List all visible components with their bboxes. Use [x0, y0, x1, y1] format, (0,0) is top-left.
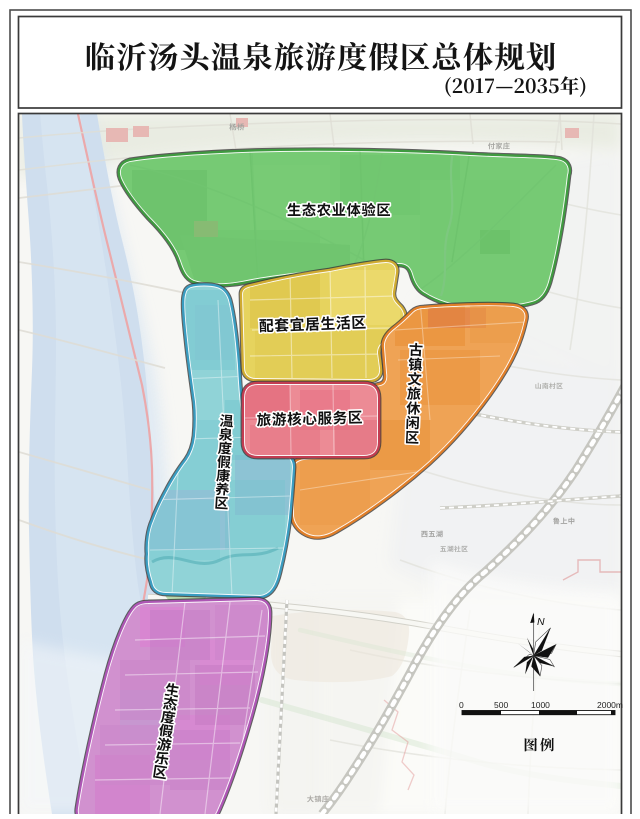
svg-text:2000m: 2000m [597, 700, 623, 710]
svg-text:500: 500 [494, 700, 508, 710]
svg-text:1000: 1000 [531, 700, 550, 710]
svg-text:0: 0 [459, 700, 464, 710]
svg-text:N: N [537, 616, 545, 628]
